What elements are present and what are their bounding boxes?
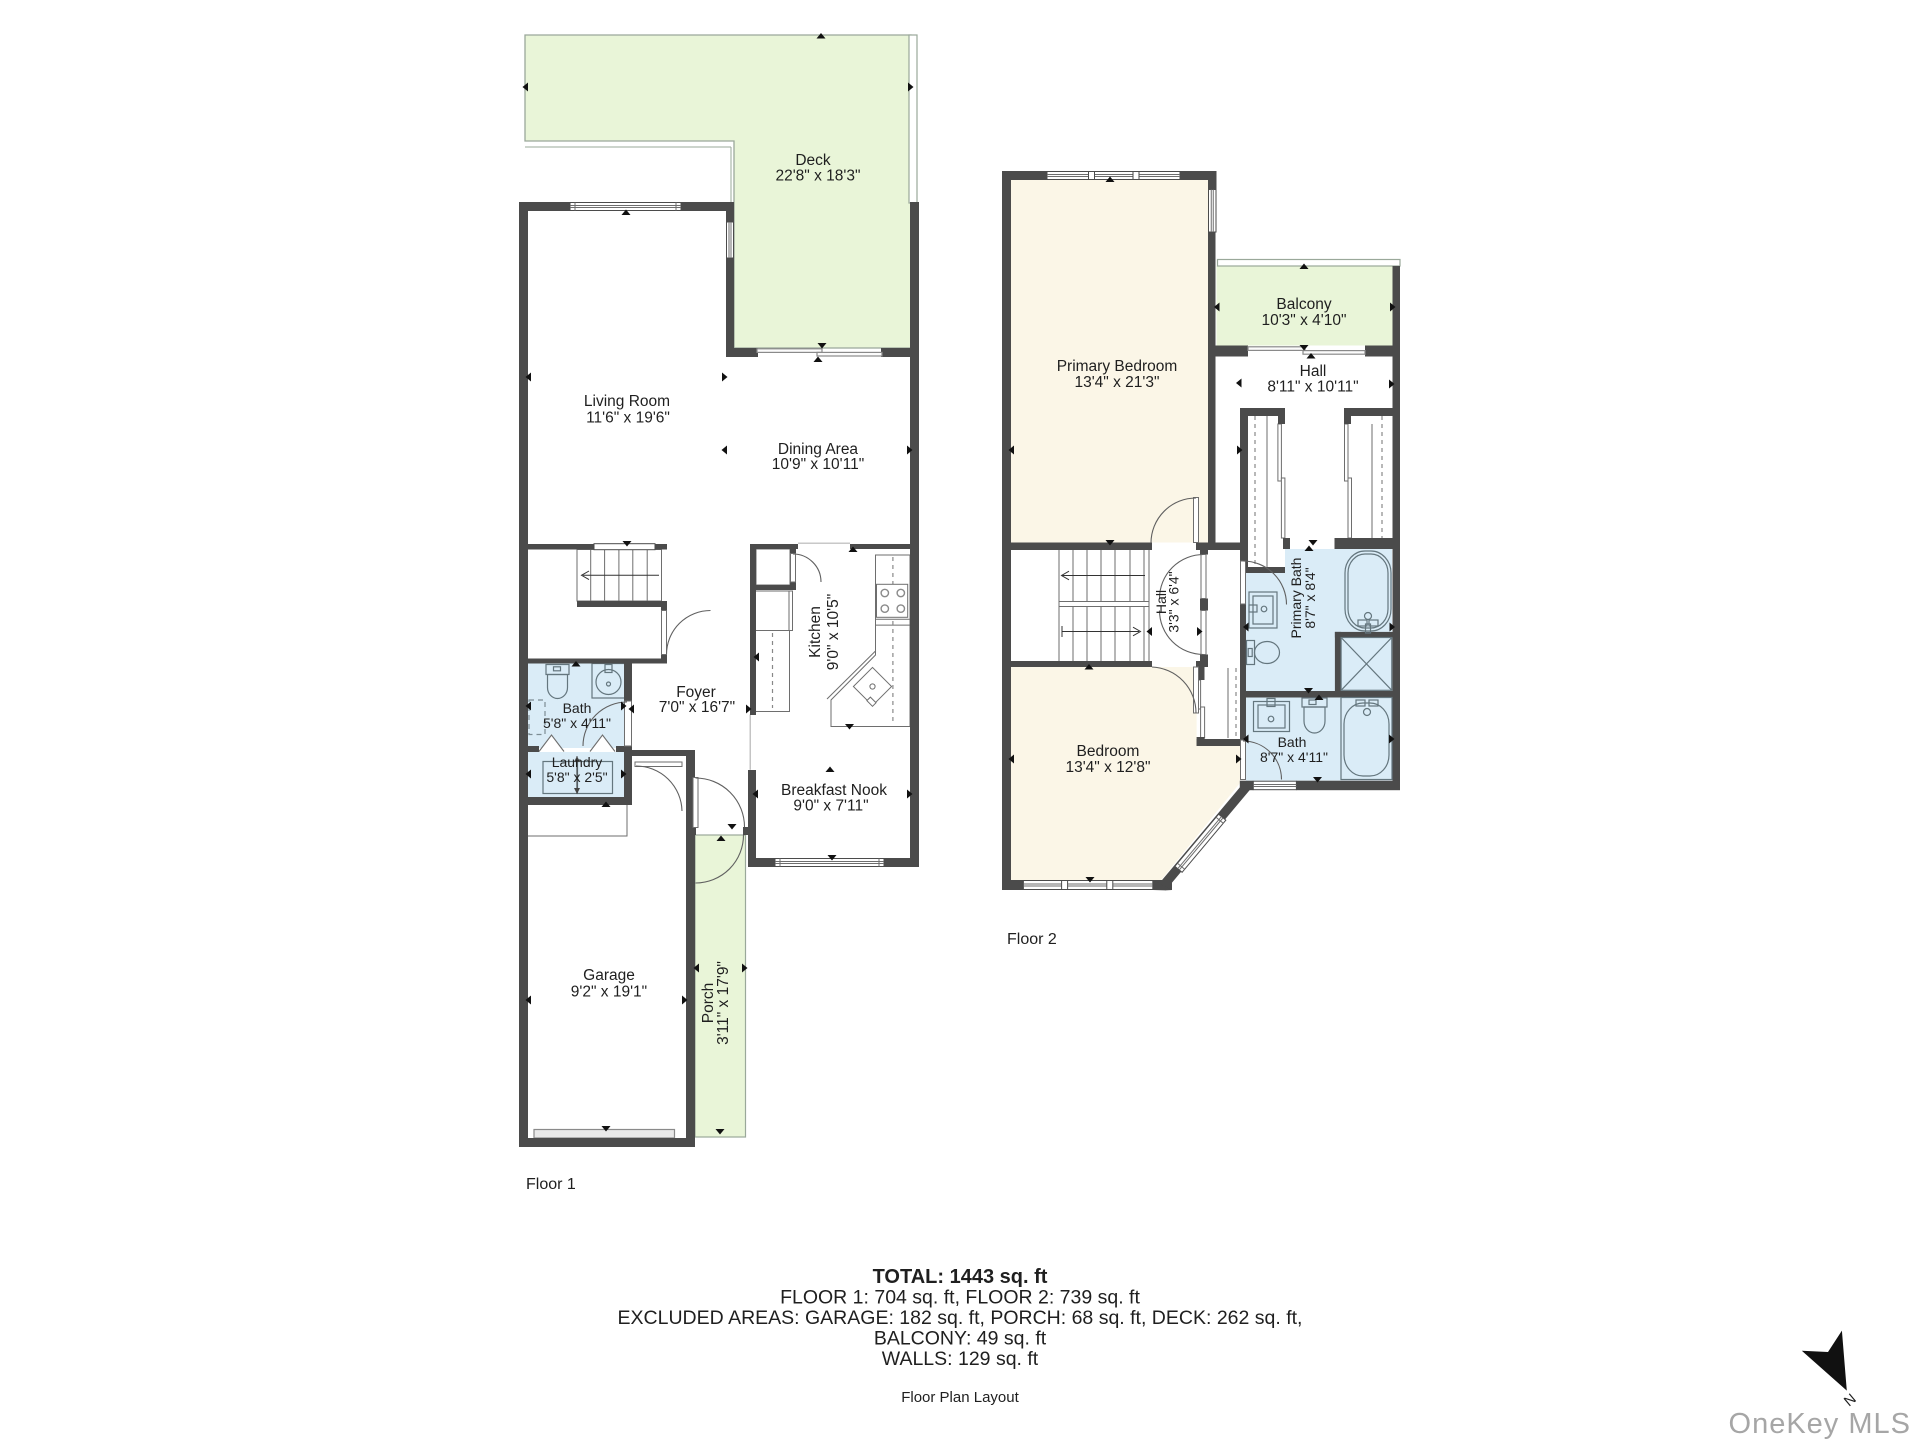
svg-text:7'0" x 16'7": 7'0" x 16'7" bbox=[659, 699, 735, 716]
svg-text:Bath: Bath bbox=[563, 700, 592, 716]
svg-text:5'8" x 4'11": 5'8" x 4'11" bbox=[543, 715, 611, 731]
svg-text:Living Room: Living Room bbox=[584, 393, 670, 410]
svg-text:8'7" x 8'4": 8'7" x 8'4" bbox=[1302, 567, 1318, 628]
svg-text:Bedroom: Bedroom bbox=[1077, 743, 1140, 760]
svg-text:3'11" x 17'9": 3'11" x 17'9" bbox=[715, 961, 732, 1045]
svg-text:Balcony: Balcony bbox=[1276, 296, 1331, 313]
svg-text:Garage: Garage bbox=[583, 967, 635, 984]
svg-text:3'3" x 6'4": 3'3" x 6'4" bbox=[1166, 571, 1182, 632]
svg-text:Floor 2: Floor 2 bbox=[1007, 931, 1057, 948]
svg-text:10'3" x 4'10": 10'3" x 4'10" bbox=[1261, 312, 1346, 329]
svg-text:Floor Plan Layout: Floor Plan Layout bbox=[901, 1389, 1019, 1406]
svg-text:BALCONY: 49 sq. ft: BALCONY: 49 sq. ft bbox=[874, 1328, 1047, 1350]
svg-text:WALLS: 129 sq. ft: WALLS: 129 sq. ft bbox=[882, 1348, 1039, 1370]
svg-text:Floor 1: Floor 1 bbox=[526, 1176, 576, 1193]
svg-text:13'4" x 12'8": 13'4" x 12'8" bbox=[1065, 759, 1150, 776]
svg-text:Breakfast Nook: Breakfast Nook bbox=[781, 782, 887, 799]
svg-text:9'2" x 19'1": 9'2" x 19'1" bbox=[571, 984, 647, 1001]
svg-text:13'4" x 21'3": 13'4" x 21'3" bbox=[1074, 374, 1159, 391]
svg-text:22'8" x 18'3": 22'8" x 18'3" bbox=[775, 168, 860, 185]
svg-text:9'0" x 7'11": 9'0" x 7'11" bbox=[793, 798, 868, 815]
svg-text:9'0" x 10'5": 9'0" x 10'5" bbox=[825, 594, 842, 670]
svg-text:11'6" x 19'6": 11'6" x 19'6" bbox=[586, 410, 670, 427]
svg-text:EXCLUDED AREAS: GARAGE: 182 sq: EXCLUDED AREAS: GARAGE: 182 sq. ft, PORC… bbox=[618, 1307, 1303, 1329]
svg-text:Deck: Deck bbox=[795, 152, 831, 169]
svg-text:Laundry: Laundry bbox=[552, 754, 603, 770]
svg-text:FLOOR 1: 704 sq. ft, FLOOR 2:: FLOOR 1: 704 sq. ft, FLOOR 2: 739 sq. ft bbox=[780, 1287, 1140, 1309]
svg-text:8'7" x 4'11": 8'7" x 4'11" bbox=[1260, 749, 1328, 765]
svg-text:Kitchen: Kitchen bbox=[807, 606, 824, 658]
svg-text:Bath: Bath bbox=[1278, 734, 1307, 750]
svg-text:8'11" x 10'11": 8'11" x 10'11" bbox=[1267, 379, 1358, 396]
svg-text:Primary Bedroom: Primary Bedroom bbox=[1057, 358, 1178, 375]
svg-text:OneKey MLS: OneKey MLS bbox=[1729, 1408, 1911, 1440]
svg-text:Hall: Hall bbox=[1300, 363, 1327, 380]
svg-text:5'8" x 2'5": 5'8" x 2'5" bbox=[546, 769, 607, 785]
svg-text:10'9" x 10'11": 10'9" x 10'11" bbox=[772, 456, 864, 473]
svg-text:TOTAL: 1443 sq. ft: TOTAL: 1443 sq. ft bbox=[873, 1266, 1048, 1288]
